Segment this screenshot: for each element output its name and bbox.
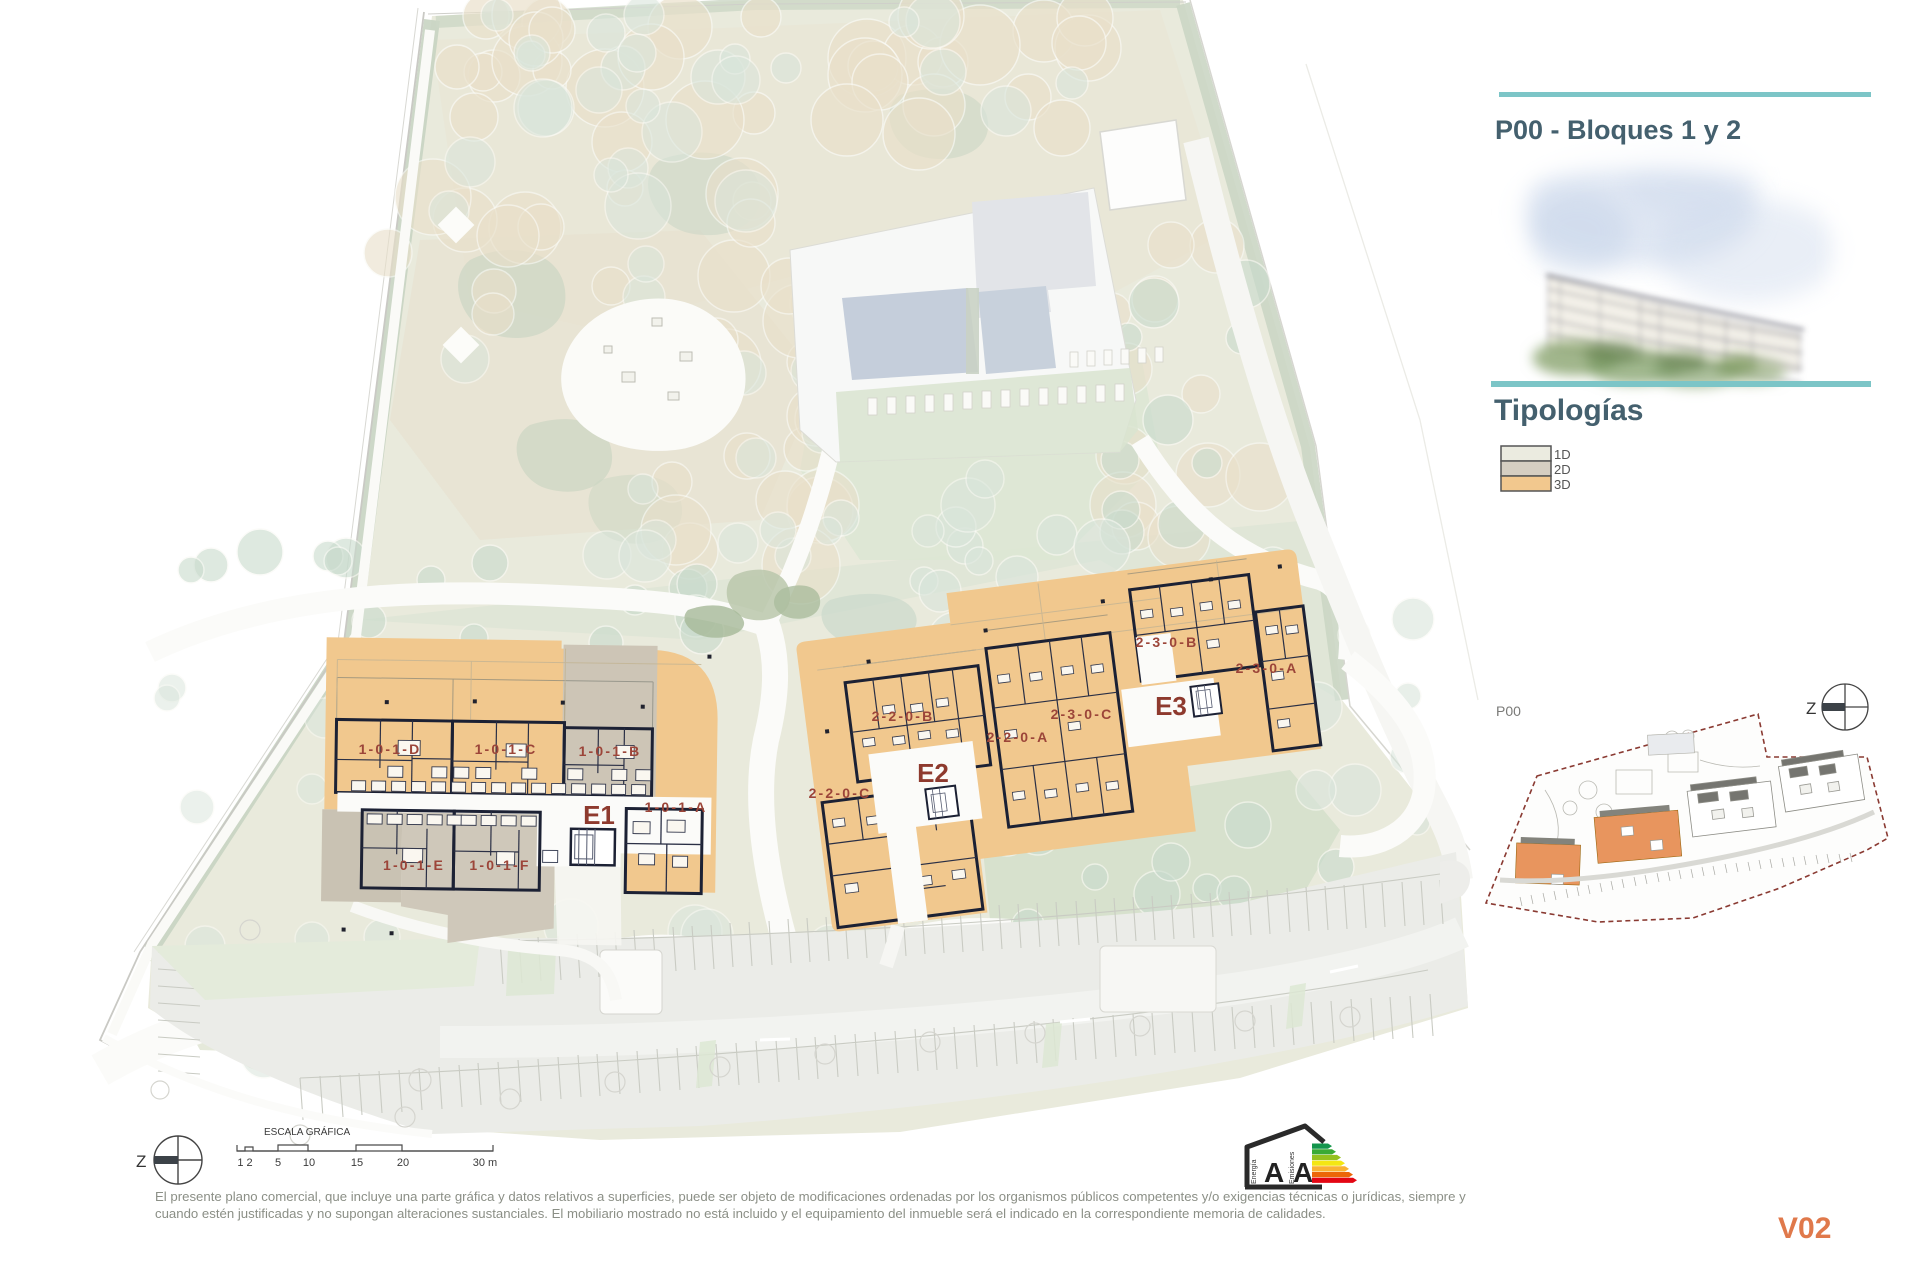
- svg-text:2-3-0-B: 2-3-0-B: [1136, 634, 1199, 650]
- svg-text:A: A: [1293, 1157, 1313, 1188]
- svg-text:1D: 1D: [1554, 447, 1571, 462]
- svg-text:5: 5: [275, 1157, 281, 1169]
- svg-text:Z: Z: [1806, 699, 1816, 718]
- svg-text:2D: 2D: [1554, 462, 1571, 477]
- svg-text:P00: P00: [1496, 703, 1521, 719]
- svg-text:3D: 3D: [1554, 477, 1571, 492]
- svg-text:2-3-0-A: 2-3-0-A: [1236, 660, 1299, 676]
- svg-text:30 m: 30 m: [473, 1157, 497, 1169]
- svg-text:1-0-1-F: 1-0-1-F: [469, 857, 530, 873]
- svg-text:1-0-1-E: 1-0-1-E: [383, 857, 445, 873]
- svg-text:cuando estén justificadas y no: cuando estén justificadas y no supongan …: [155, 1206, 1326, 1221]
- svg-text:E3: E3: [1155, 691, 1187, 721]
- svg-text:1 2: 1 2: [237, 1157, 252, 1169]
- svg-text:Z: Z: [136, 1152, 146, 1171]
- svg-text:Energía: Energía: [1251, 1159, 1258, 1184]
- svg-text:Emisiones: Emisiones: [1289, 1151, 1296, 1184]
- svg-text:1-0-1-D: 1-0-1-D: [359, 741, 422, 757]
- svg-text:A: A: [1264, 1157, 1284, 1188]
- svg-text:El presente plano comercial, q: El presente plano comercial, que incluye…: [155, 1189, 1466, 1204]
- svg-text:1-0-1-B: 1-0-1-B: [579, 743, 642, 759]
- svg-text:Tipologías: Tipologías: [1494, 394, 1643, 427]
- svg-text:P00 - Bloques 1 y 2: P00 - Bloques 1 y 2: [1495, 115, 1741, 145]
- svg-text:2-2-0-B: 2-2-0-B: [872, 708, 935, 724]
- svg-text:V02: V02: [1778, 1212, 1831, 1245]
- svg-text:E2: E2: [917, 758, 949, 788]
- svg-text:E1: E1: [583, 800, 615, 830]
- svg-text:2-2-0-C: 2-2-0-C: [809, 785, 872, 801]
- svg-text:2-3-0-C: 2-3-0-C: [1051, 706, 1114, 722]
- svg-text:1-0-1-A: 1-0-1-A: [645, 799, 708, 815]
- svg-text:2-2-0-A: 2-2-0-A: [987, 729, 1050, 745]
- svg-text:15: 15: [351, 1157, 363, 1169]
- svg-text:1-0-1-C: 1-0-1-C: [475, 741, 538, 757]
- svg-text:20: 20: [397, 1157, 409, 1169]
- svg-text:10: 10: [303, 1157, 315, 1169]
- svg-text:ESCALA GRÁFICA: ESCALA GRÁFICA: [264, 1125, 350, 1138]
